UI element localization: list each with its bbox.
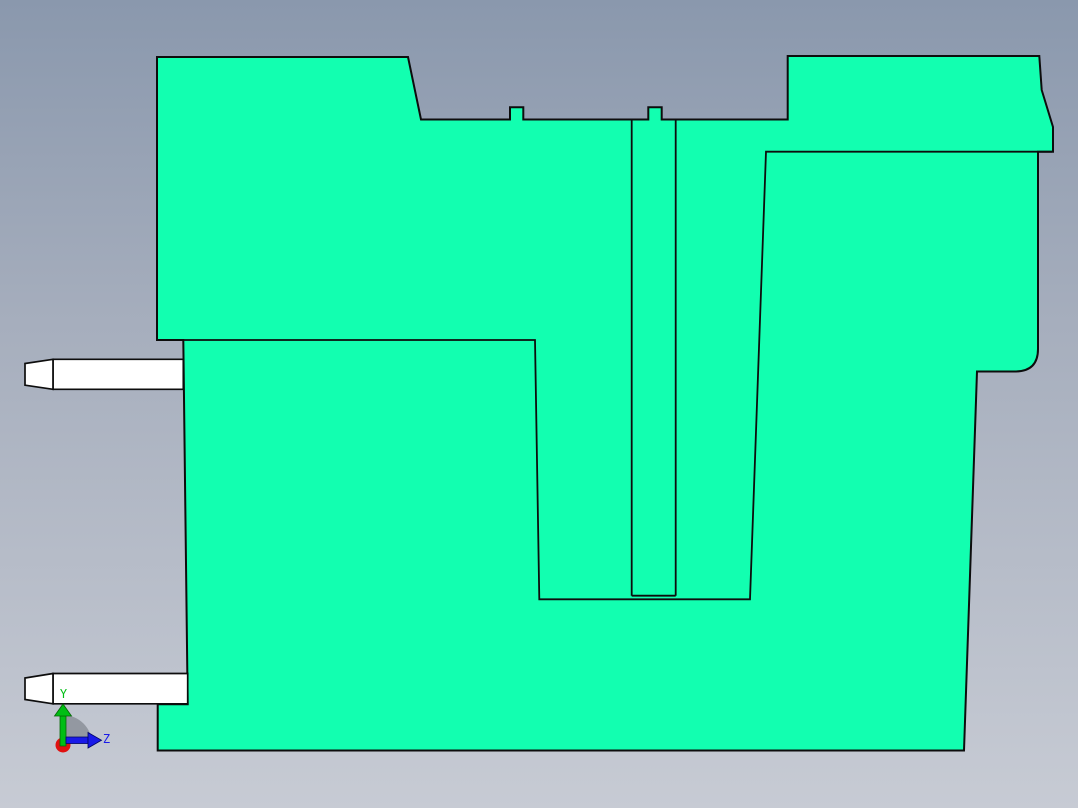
mold-body[interactable] bbox=[157, 56, 1053, 751]
z-axis-arrow-shaft bbox=[66, 737, 88, 744]
y-axis-label: Y bbox=[60, 687, 68, 701]
lower-pin-tip[interactable] bbox=[25, 674, 53, 704]
y-axis-arrow-shaft bbox=[60, 716, 66, 746]
upper-pin-tip[interactable] bbox=[25, 359, 53, 389]
upper-pin-body[interactable] bbox=[53, 359, 183, 389]
lower-pin-body[interactable] bbox=[53, 674, 188, 704]
z-axis-label: Z bbox=[103, 732, 110, 746]
cad-viewport[interactable]: Y Z bbox=[0, 0, 1078, 808]
mold-section bbox=[157, 56, 1053, 751]
scene-svg: Y Z bbox=[0, 0, 1078, 808]
